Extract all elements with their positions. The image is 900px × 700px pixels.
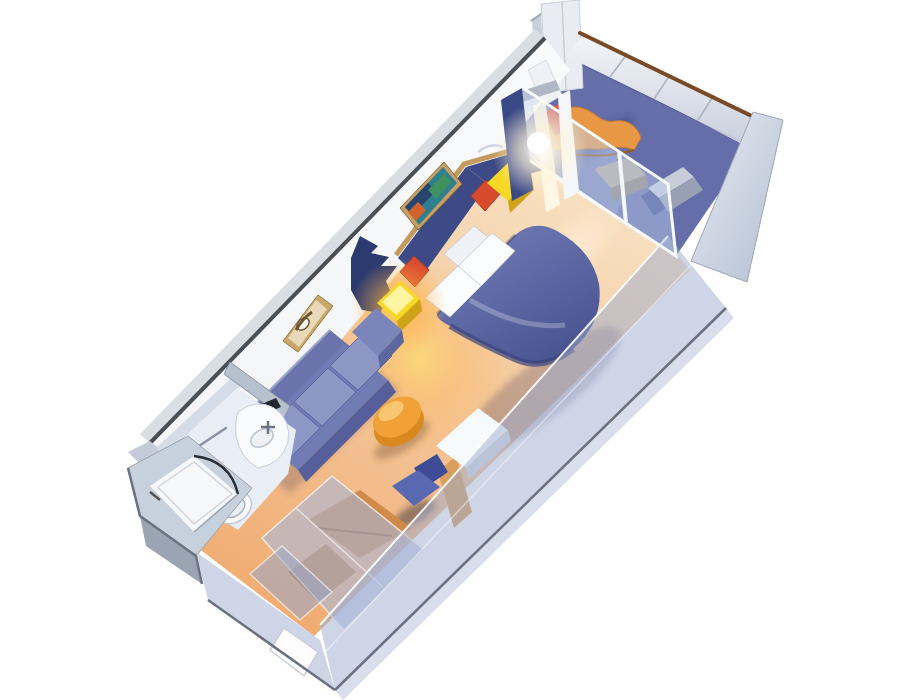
sun-flare-core (527, 132, 549, 154)
stateroom-render (0, 0, 900, 700)
stateroom-render-page (0, 0, 900, 700)
